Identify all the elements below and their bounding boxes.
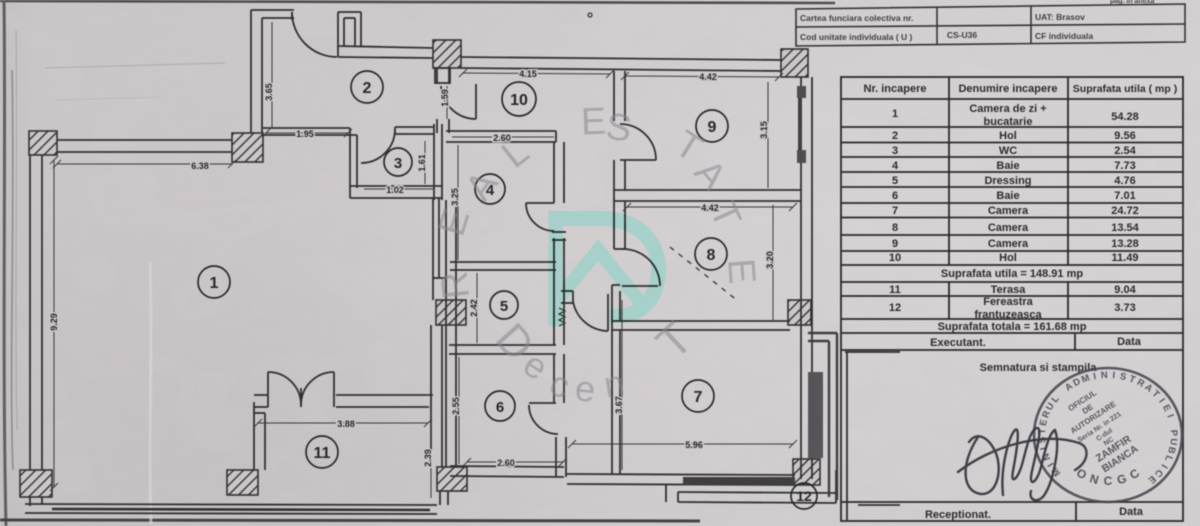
svg-text:C: C <box>1127 466 1142 483</box>
svg-text:5: 5 <box>500 298 508 315</box>
svg-text:3: 3 <box>892 145 898 157</box>
svg-text:R: R <box>433 269 478 301</box>
svg-text:13.54: 13.54 <box>1111 222 1139 234</box>
svg-text:c: c <box>545 362 575 407</box>
svg-text:3.25: 3.25 <box>450 188 460 206</box>
svg-text:A: A <box>458 163 507 208</box>
svg-text:Dressing: Dressing <box>984 175 1031 187</box>
svg-text:I: I <box>1092 371 1097 382</box>
svg-text:E: E <box>431 204 479 241</box>
svg-text:11: 11 <box>314 445 331 462</box>
svg-text:UAT: Brasov: UAT: Brasov <box>1035 12 1085 22</box>
svg-text:1: 1 <box>210 275 219 292</box>
svg-text:Camera de zi +: Camera de zi + <box>969 103 1046 115</box>
svg-text:6: 6 <box>892 190 898 202</box>
svg-text:2.39: 2.39 <box>423 449 433 467</box>
svg-text:Hol: Hol <box>999 252 1017 264</box>
svg-text:3.20: 3.20 <box>765 251 775 269</box>
svg-text:E: E <box>580 101 607 144</box>
svg-text:11.49: 11.49 <box>1112 252 1139 264</box>
svg-text:2: 2 <box>892 130 898 142</box>
svg-text:Baie: Baie <box>996 160 1019 172</box>
svg-text:6.38: 6.38 <box>191 161 209 171</box>
svg-text:1: 1 <box>892 108 898 120</box>
svg-text:I: I <box>1156 397 1167 405</box>
svg-text:1.61: 1.61 <box>417 154 427 172</box>
svg-text:Hol: Hol <box>999 130 1017 142</box>
svg-text:12: 12 <box>889 302 901 314</box>
svg-text:Camera: Camera <box>988 238 1029 250</box>
svg-text:P: P <box>1168 430 1179 437</box>
svg-text:C: C <box>1104 474 1113 488</box>
svg-text:4: 4 <box>892 160 899 172</box>
svg-text:7: 7 <box>694 389 703 406</box>
svg-text:13.28: 13.28 <box>1111 238 1139 250</box>
svg-text:Fereastra: Fereastra <box>983 296 1033 308</box>
svg-text:Suprafata utila = 148.91 mp: Suprafata utila = 148.91 mp <box>941 268 1083 280</box>
svg-text:2.55: 2.55 <box>451 397 461 415</box>
svg-text:I: I <box>1164 413 1175 419</box>
svg-text:10: 10 <box>889 252 901 264</box>
svg-text:G: G <box>1115 471 1128 487</box>
svg-text:4.76: 4.76 <box>1114 175 1135 187</box>
svg-text:2.42: 2.42 <box>469 299 479 317</box>
svg-text:frantuzeasca: frantuzeasca <box>974 309 1042 321</box>
svg-text:e: e <box>573 367 597 410</box>
svg-text:Data: Data <box>1119 506 1144 518</box>
svg-text:I: I <box>1112 370 1116 381</box>
svg-text:Denumire incapere: Denumire incapere <box>958 83 1057 95</box>
svg-text:2.60: 2.60 <box>497 458 515 468</box>
svg-text:3.88: 3.88 <box>337 419 355 429</box>
svg-text:WC: WC <box>999 145 1017 157</box>
svg-text:4.15: 4.15 <box>519 69 537 79</box>
svg-text:M: M <box>1080 373 1091 386</box>
svg-text:3.65: 3.65 <box>264 83 274 101</box>
svg-text:Baie: Baie <box>996 190 1019 202</box>
svg-text:bucatarie: bucatarie <box>984 116 1033 128</box>
svg-text:U: U <box>1167 438 1179 446</box>
svg-text:Cartea funciara colectiva nr.: Cartea funciara colectiva nr. <box>800 13 913 23</box>
svg-text:9.56: 9.56 <box>1114 130 1135 142</box>
svg-text:n: n <box>601 362 627 406</box>
svg-text:Receptionat.: Receptionat. <box>925 509 991 521</box>
svg-text:Executant.: Executant. <box>930 337 986 349</box>
svg-text:7: 7 <box>892 205 898 217</box>
svg-text:9.04: 9.04 <box>1114 284 1136 296</box>
svg-text:E: E <box>1038 419 1050 427</box>
svg-text:Cod unitate individuala ( U ): Cod unitate individuala ( U ) <box>800 32 913 42</box>
svg-text:6: 6 <box>496 399 504 416</box>
svg-text:1.95: 1.95 <box>296 129 314 139</box>
svg-text:Suprafata totala = 161.68 mp: Suprafata totala = 161.68 mp <box>938 321 1087 333</box>
svg-text:1.59: 1.59 <box>440 89 450 107</box>
svg-text:9: 9 <box>708 119 717 136</box>
svg-text:E: E <box>719 257 763 285</box>
svg-text:E: E <box>1160 403 1173 414</box>
svg-text:Nr. incapere: Nr. incapere <box>864 83 927 95</box>
svg-text:Data: Data <box>1117 336 1142 348</box>
svg-text:2: 2 <box>363 80 372 97</box>
svg-text:8: 8 <box>892 222 898 234</box>
svg-text:9.29: 9.29 <box>49 313 59 331</box>
svg-text:Camera: Camera <box>988 222 1029 234</box>
svg-text:1.02: 1.02 <box>386 185 404 195</box>
svg-text:CS-U36: CS-U36 <box>947 30 978 40</box>
svg-text:5.96: 5.96 <box>685 440 703 450</box>
svg-text:2.54: 2.54 <box>1114 145 1136 157</box>
svg-text:3.15: 3.15 <box>759 121 769 139</box>
svg-text:4.42: 4.42 <box>699 72 717 82</box>
svg-text:Camera: Camera <box>988 205 1029 217</box>
svg-text:5: 5 <box>892 175 898 187</box>
svg-text:CF individuala: CF individuala <box>1035 31 1093 41</box>
svg-text:11: 11 <box>889 284 901 296</box>
svg-text:L: L <box>1162 453 1174 463</box>
svg-text:54.28: 54.28 <box>1111 111 1139 123</box>
svg-text:3.73: 3.73 <box>1114 302 1135 314</box>
svg-text:12: 12 <box>796 488 812 504</box>
svg-text:7.01: 7.01 <box>1114 190 1135 202</box>
svg-text:10: 10 <box>510 92 528 109</box>
svg-text:8: 8 <box>707 247 716 264</box>
svg-text:Suprafata utila ( mp ): Suprafata utila ( mp ) <box>1073 83 1177 95</box>
svg-text:N: N <box>1088 471 1100 487</box>
svg-text:S: S <box>1119 371 1128 383</box>
svg-text:24.72: 24.72 <box>1111 205 1139 217</box>
svg-text:S: S <box>603 106 634 151</box>
svg-text:9: 9 <box>892 238 898 250</box>
svg-text:N: N <box>1101 370 1109 381</box>
svg-text:3: 3 <box>394 155 402 172</box>
svg-text:7.73: 7.73 <box>1114 160 1135 172</box>
svg-text:Terasa: Terasa <box>991 284 1027 296</box>
svg-text:pag. in anexa: pag. in anexa <box>1110 0 1154 5</box>
